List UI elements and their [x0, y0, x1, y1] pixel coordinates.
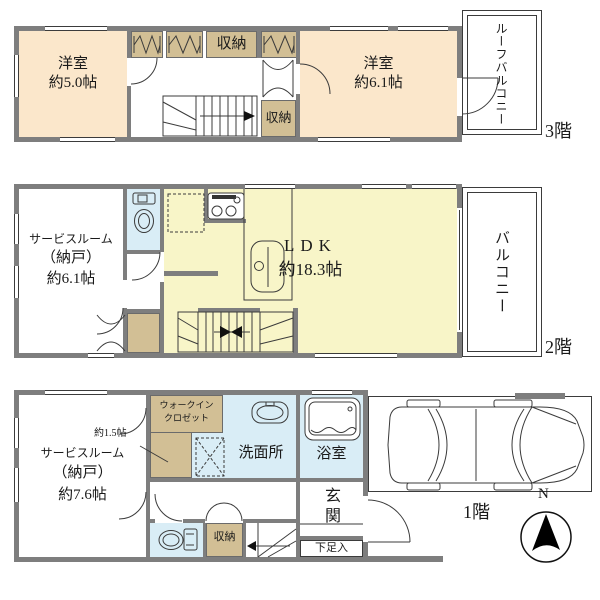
roof-balcony-label: ルーフバルコニー	[495, 22, 507, 126]
sink-icon	[252, 402, 288, 423]
door-arc	[155, 494, 182, 521]
room-label: 洋室	[300, 57, 457, 72]
door-arc	[368, 500, 410, 542]
toilet-icon	[133, 193, 155, 233]
double-door-arc	[206, 503, 242, 521]
ldk-area: 約18.3帖	[164, 261, 457, 278]
room-area: 約5.0帖	[19, 76, 127, 91]
closet-label: 収納	[261, 111, 296, 124]
washer-space	[196, 438, 224, 476]
service-room-label: サービスルーム	[19, 233, 123, 245]
door-arc	[131, 58, 157, 84]
stairs-3f	[163, 96, 257, 136]
closet-label: 収納	[206, 37, 257, 52]
compass-n-label: N	[538, 487, 549, 502]
stove-icon	[208, 193, 244, 219]
car-icon	[388, 400, 584, 490]
stairs-1f	[247, 523, 296, 557]
entrance-label: 玄関	[322, 487, 338, 527]
stairs-2f	[178, 312, 293, 352]
toilet-icon	[159, 529, 197, 550]
folding-door-icon	[263, 60, 293, 97]
room-label: 洋室	[19, 57, 127, 72]
floor-label-3f: 3階	[545, 122, 572, 140]
shoe-box-label: 下足入	[300, 543, 363, 554]
service-room-label: （納戸）	[19, 466, 146, 481]
closet-label: 収納	[206, 532, 243, 543]
balcony-label: バルコニー	[493, 230, 508, 315]
ldk-label: LDK	[164, 237, 457, 254]
bathtub-icon	[305, 398, 360, 440]
folding-door-icon	[97, 315, 125, 351]
door-arc	[132, 252, 160, 280]
floor-label-2f: 2階	[545, 338, 572, 356]
room-area: 約6.1帖	[300, 76, 457, 91]
hanger-rod-icon	[169, 36, 200, 53]
hanger-rod-icon	[264, 36, 294, 53]
floor-plan: 洋室 約5.0帖 洋室 約6.1帖 収納 収納 ルーフバルコニー 3階 サービス…	[0, 0, 600, 600]
compass-icon	[521, 512, 571, 562]
service-room-label: サービスルーム	[19, 447, 146, 459]
fridge-space	[168, 194, 204, 232]
service-room-area: 約6.1帖	[19, 272, 123, 287]
floor-label-1f: 1階	[463, 503, 490, 521]
wic-label: ウォークイン	[150, 401, 223, 410]
door-arc	[462, 78, 498, 114]
bathroom-label: 浴室	[300, 447, 363, 462]
wic-label: クロゼット	[150, 414, 223, 423]
service-room-label: （納戸）	[19, 251, 123, 266]
hanger-rod-icon	[134, 36, 160, 53]
service-room-area: 約7.6帖	[19, 488, 146, 503]
washroom-label: 洗面所	[222, 446, 300, 461]
wic-area: 約1.5帖	[94, 429, 127, 439]
